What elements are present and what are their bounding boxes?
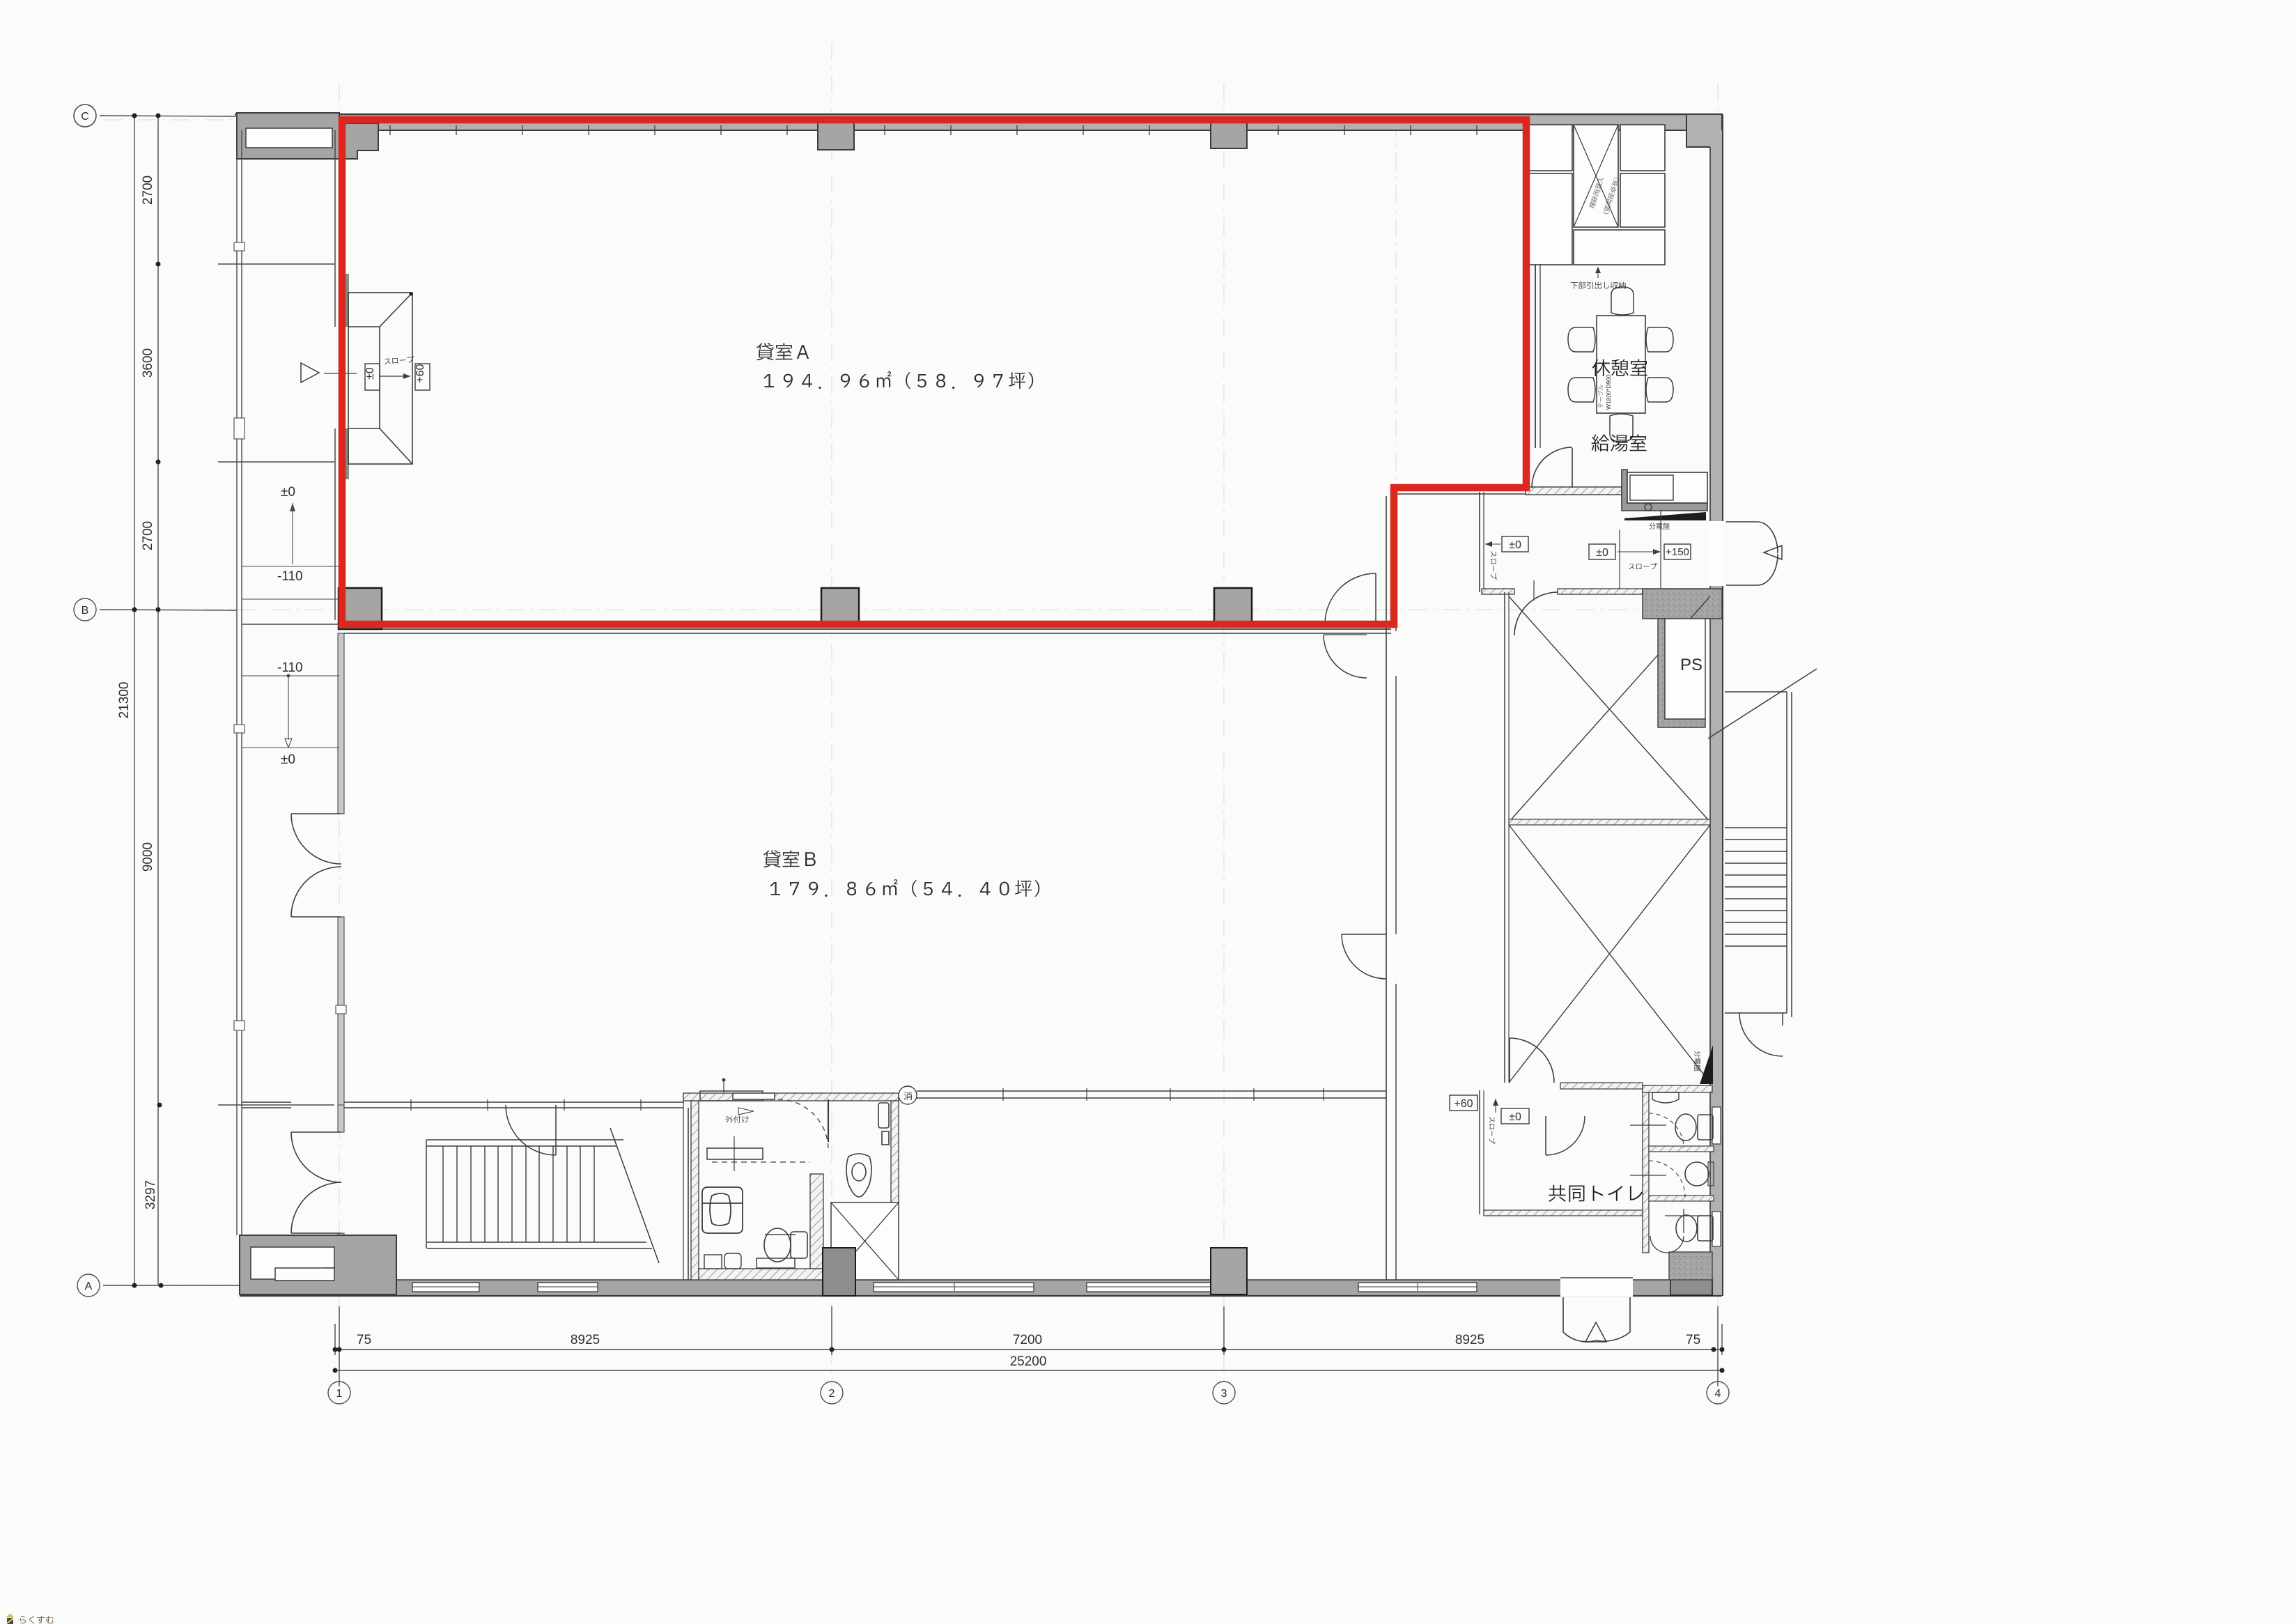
- svg-text:3297: 3297: [143, 1180, 158, 1209]
- svg-text:-110: -110: [277, 660, 303, 675]
- svg-text:±0: ±0: [1509, 539, 1521, 551]
- svg-text:-110: -110: [277, 569, 303, 584]
- svg-text:+150: +150: [1666, 546, 1689, 558]
- svg-text:2700: 2700: [141, 521, 155, 550]
- svg-text:1: 1: [336, 1388, 343, 1400]
- svg-text:±0: ±0: [281, 752, 295, 767]
- svg-text:75: 75: [357, 1333, 371, 1347]
- svg-text:±0: ±0: [364, 367, 376, 380]
- svg-text:2700: 2700: [141, 176, 155, 205]
- svg-text:±0: ±0: [1596, 547, 1608, 559]
- svg-text:4: 4: [1715, 1388, 1721, 1400]
- svg-text:W1800*D900: W1800*D900: [1605, 374, 1612, 410]
- svg-text:3: 3: [1221, 1388, 1227, 1400]
- svg-text:±0: ±0: [1509, 1111, 1521, 1123]
- svg-text:C: C: [81, 111, 89, 123]
- svg-text:25200: 25200: [1010, 1354, 1047, 1369]
- svg-text:21300: 21300: [117, 682, 132, 719]
- svg-text:PS: PS: [1680, 656, 1702, 674]
- svg-text:+60: +60: [414, 364, 426, 382]
- svg-text:7200: 7200: [1013, 1333, 1042, 1347]
- svg-text:8925: 8925: [1455, 1333, 1484, 1347]
- svg-text:+60: +60: [1454, 1098, 1473, 1110]
- svg-text:75: 75: [1686, 1333, 1700, 1347]
- svg-text:B: B: [82, 605, 89, 617]
- svg-text:±0: ±0: [281, 485, 295, 500]
- svg-text:9000: 9000: [141, 842, 155, 872]
- svg-text:3600: 3600: [141, 348, 155, 378]
- svg-text:A: A: [85, 1281, 93, 1292]
- svg-text:2: 2: [829, 1388, 835, 1400]
- svg-text:8925: 8925: [571, 1333, 600, 1347]
